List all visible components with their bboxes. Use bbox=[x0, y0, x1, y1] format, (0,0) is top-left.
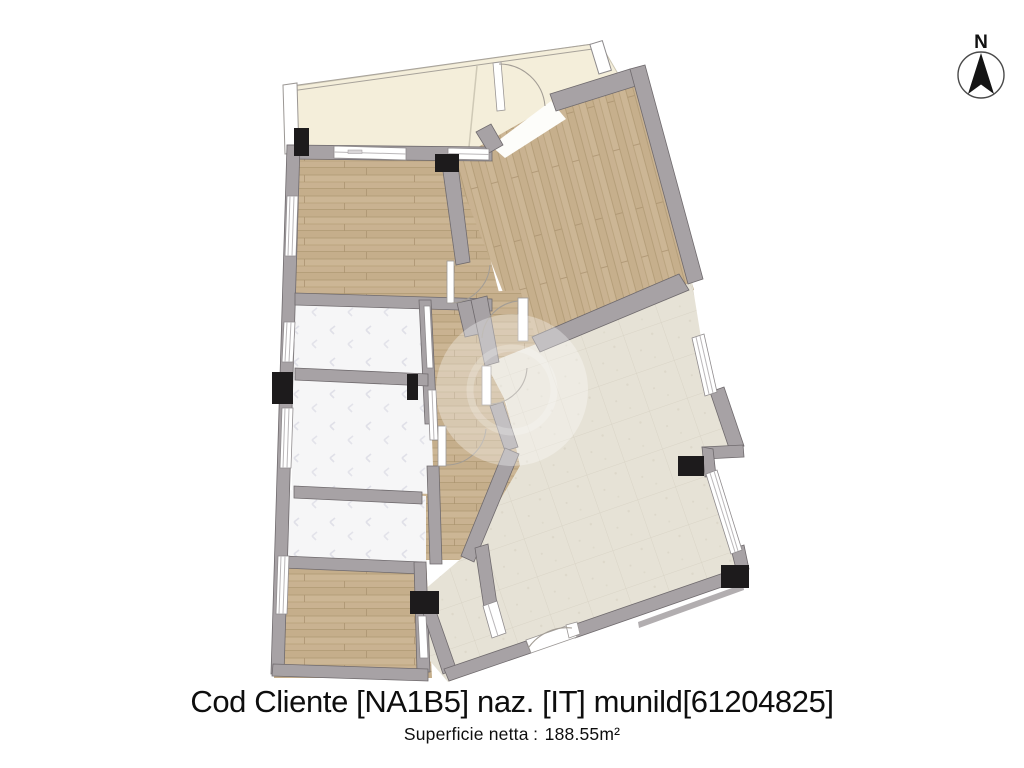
floor-plan-drawing: N bbox=[0, 0, 1024, 768]
compass: N bbox=[958, 32, 1004, 98]
watermark bbox=[436, 314, 588, 466]
bedroom1-door-leaf bbox=[447, 261, 454, 303]
area-value: 188.55m² bbox=[545, 724, 621, 744]
compass-label: N bbox=[974, 32, 988, 53]
room-bottom-left-floor bbox=[274, 558, 432, 678]
hall-door3-leaf bbox=[438, 426, 446, 466]
caption-block: Cod Cliente [NA1B5] naz. [IT] munild[612… bbox=[0, 684, 1024, 745]
area-separator: : bbox=[529, 724, 543, 745]
plan-area: Superficie netta:188.55m² bbox=[0, 724, 1024, 745]
plan-title: Cod Cliente [NA1B5] naz. [IT] munild[612… bbox=[0, 684, 1024, 720]
north-needle-icon bbox=[968, 53, 994, 94]
area-label: Superficie netta bbox=[404, 724, 529, 744]
bathroom-a-floor bbox=[294, 298, 430, 378]
floorplan-page: N Cod Cliente [NA1B5] naz. [IT] munild[6… bbox=[0, 0, 1024, 768]
